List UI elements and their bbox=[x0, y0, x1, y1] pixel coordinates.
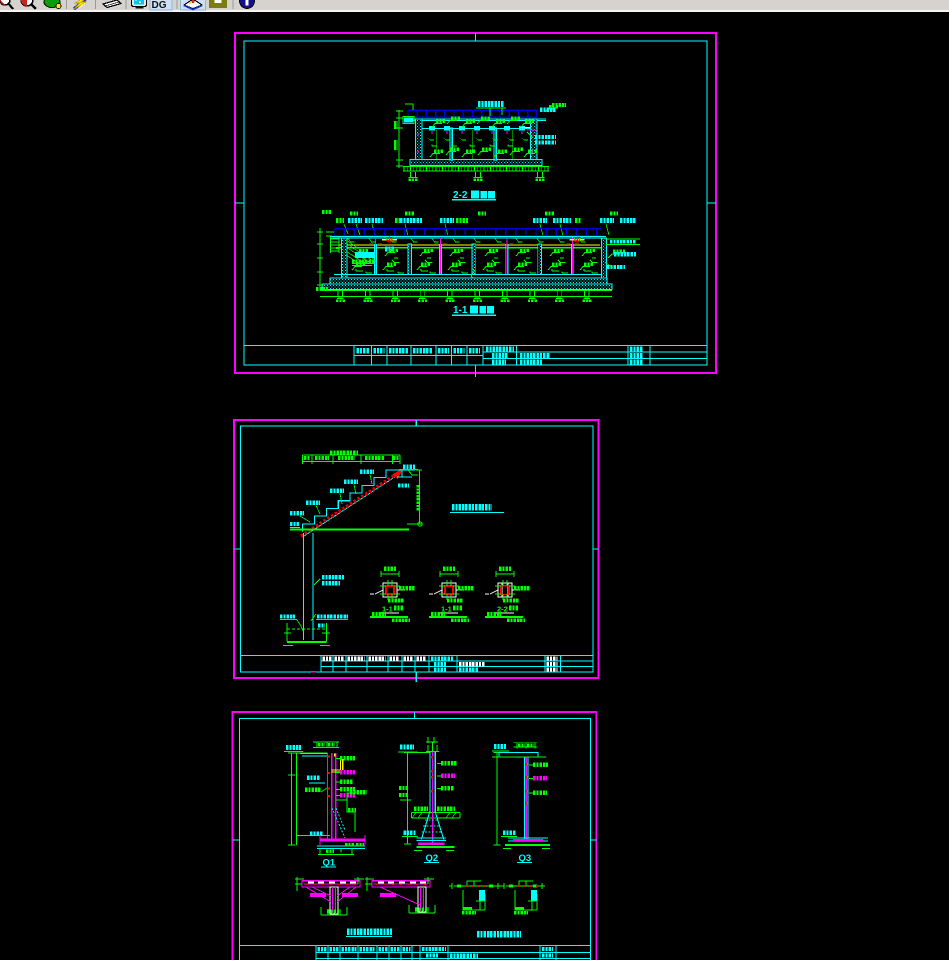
svg-text:DG: DG bbox=[152, 0, 167, 11]
svg-text:1-1: 1-1 bbox=[453, 305, 468, 316]
